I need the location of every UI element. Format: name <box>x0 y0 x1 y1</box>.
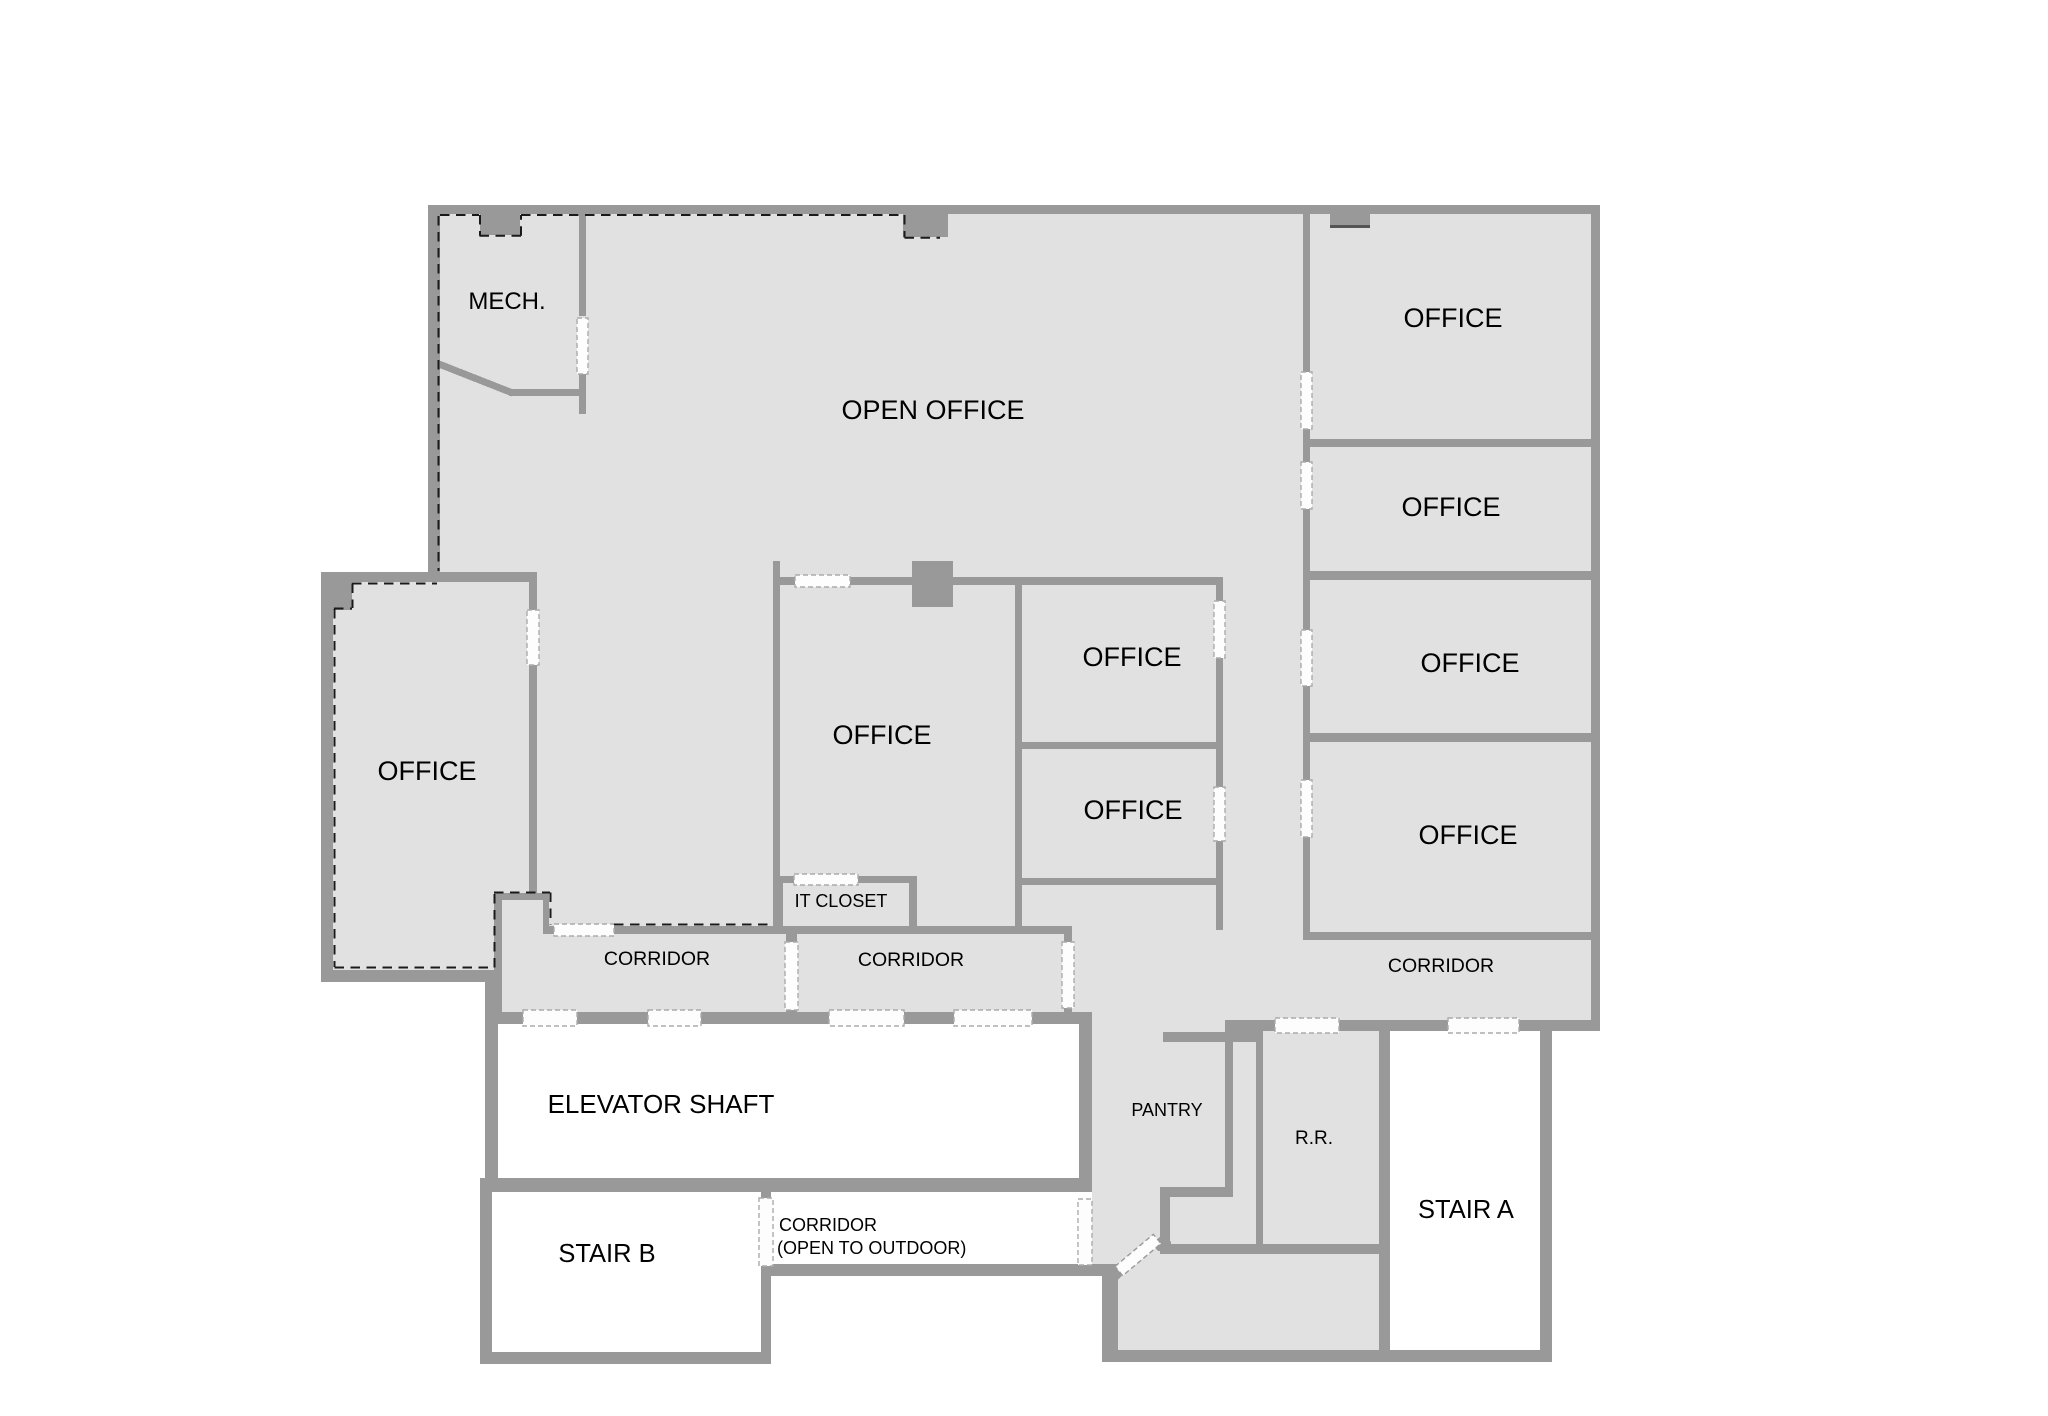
svg-text:OFFICE: OFFICE <box>378 756 477 786</box>
svg-text:MECH.: MECH. <box>468 288 545 315</box>
svg-text:STAIR A: STAIR A <box>1418 1196 1514 1224</box>
svg-text:OFFICE: OFFICE <box>1421 648 1520 678</box>
svg-text:R.R.: R.R. <box>1295 1128 1333 1149</box>
svg-text:OFFICE: OFFICE <box>1419 820 1518 850</box>
svg-text:ELEVATOR SHAFT: ELEVATOR SHAFT <box>548 1089 775 1119</box>
svg-text:CORRIDOR: CORRIDOR <box>858 949 964 971</box>
svg-text:PANTRY: PANTRY <box>1131 1100 1202 1120</box>
svg-text:OFFICE: OFFICE <box>1404 303 1503 333</box>
svg-text:STAIR B: STAIR B <box>558 1240 655 1268</box>
svg-text:IT CLOSET: IT CLOSET <box>795 891 888 911</box>
svg-text:OFFICE: OFFICE <box>1083 642 1182 672</box>
svg-text:CORRIDOR: CORRIDOR <box>1388 955 1494 977</box>
svg-text:(OPEN TO OUTDOOR): (OPEN TO OUTDOOR) <box>777 1238 966 1258</box>
svg-text:CORRIDOR: CORRIDOR <box>779 1215 877 1235</box>
svg-text:CORRIDOR: CORRIDOR <box>604 948 710 970</box>
svg-text:OPEN OFFICE: OPEN OFFICE <box>841 395 1024 425</box>
svg-text:OFFICE: OFFICE <box>1402 492 1501 522</box>
svg-text:OFFICE: OFFICE <box>833 720 932 750</box>
svg-text:OFFICE: OFFICE <box>1084 795 1183 825</box>
